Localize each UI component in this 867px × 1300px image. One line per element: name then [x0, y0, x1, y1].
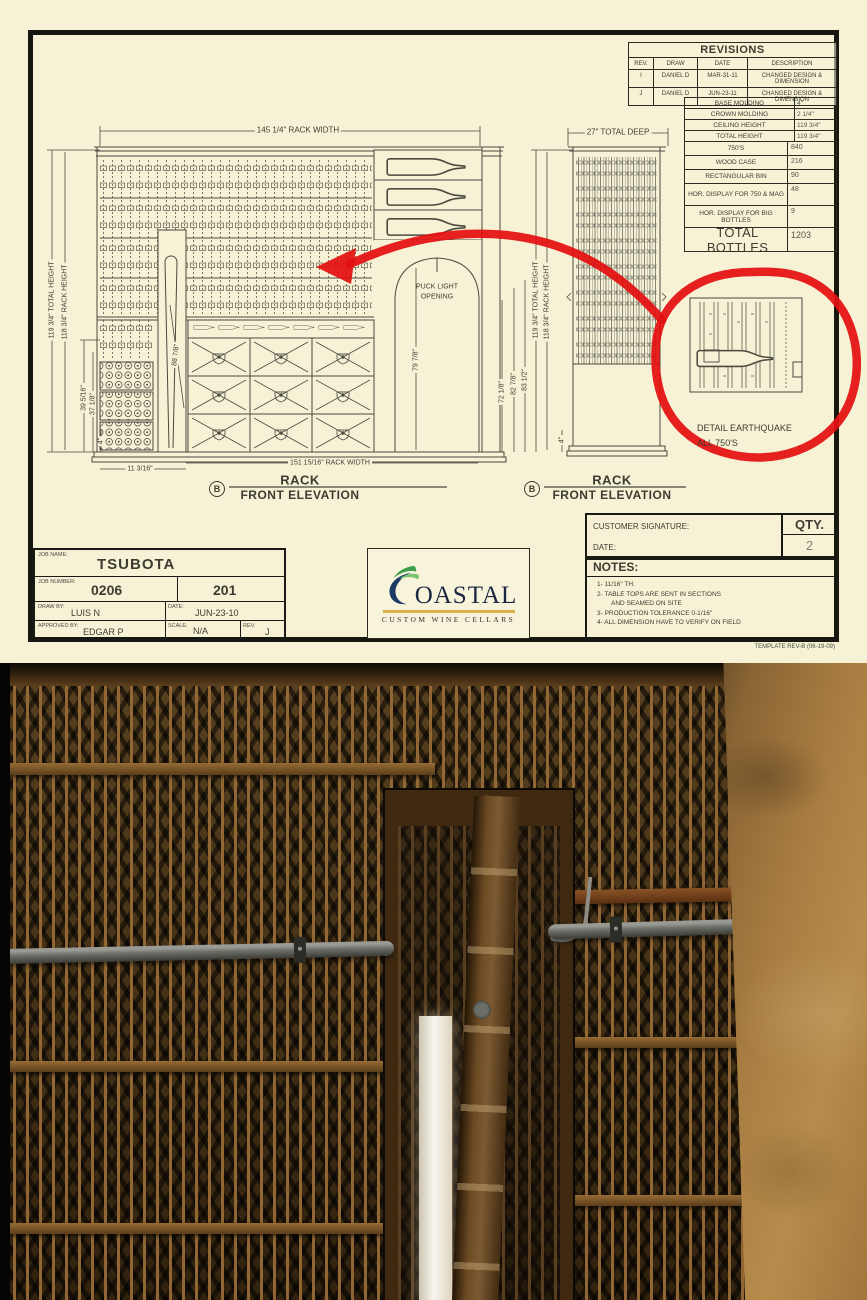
puck-light-label: OPENING [421, 294, 453, 301]
job-name-label: JOB NAME: [38, 552, 68, 558]
dim-label: 11 3/16" [125, 466, 154, 473]
revisions-header: DESCRIPTION [747, 58, 836, 69]
logo-gold-rule [383, 610, 515, 613]
rev-value: J [265, 627, 270, 637]
signature-block: CUSTOMER SIGNATURE: DATE: QTY. 2 [585, 513, 838, 560]
detail-caption: DETAIL EARTHQUAKE [697, 423, 792, 433]
revisions-header: REV. [629, 58, 653, 69]
detail-caption: ALL 750'S [697, 438, 738, 448]
photo-pipe-bracket [294, 937, 307, 963]
scale-label: SCALE: [168, 623, 188, 629]
scanned-page: REVISIONS REV. DRAW DATE DESCRIPTION I D… [0, 0, 867, 1300]
dim-label: 79 7/8" [413, 347, 420, 373]
notes-block: NOTES: 1- 11/16" TH. 2- TABLE TOPS ARE S… [585, 556, 838, 641]
customer-signature-label: CUSTOMER SIGNATURE: [593, 522, 689, 531]
total-bottles-label: TOTAL BOTTLES [685, 228, 787, 251]
spec-label: TOTAL HEIGHT [685, 131, 794, 141]
elevation-marker: B [524, 481, 540, 497]
revision-cell: J [629, 87, 653, 105]
dim-label: 27" TOTAL DEEP [585, 128, 652, 137]
count-value: 90 [787, 170, 836, 183]
right-rack-elevation [567, 147, 667, 456]
spec-value: 4" [794, 98, 836, 108]
date-value: JUN-23-10 [195, 608, 239, 618]
dim-label: 145 1/4" RACK WIDTH [255, 126, 341, 135]
dim-label: 82 7/8" [511, 371, 518, 397]
rev-label: REV. [243, 623, 255, 629]
revisions-header: DRAW [653, 58, 697, 69]
revision-cell: I [629, 69, 653, 87]
count-value: 48 [787, 184, 836, 205]
count-label: WOOD CASE [685, 156, 787, 169]
puck-light-label: PUCK LIGHT [416, 284, 458, 291]
approved-by-label: APPROVED BY: [38, 623, 79, 629]
draw-by-label: DRAW BY: [38, 604, 65, 610]
elevation-marker: B [209, 481, 225, 497]
count-value: 216 [787, 156, 836, 169]
dim-label: 151 15/16" RACK WIDTH [288, 460, 372, 467]
divider [240, 621, 241, 639]
photo-cellar-door [385, 790, 573, 1300]
divider [165, 602, 166, 620]
photo-wood-rail [10, 1061, 390, 1072]
draw-by-value: LUIS N [71, 608, 100, 618]
note-line: 3- PRODUCTION TOLERANCE 0-1/16" [597, 609, 832, 619]
photo-pipe-bracket [610, 916, 623, 942]
dim-label: 118 3/4" RACK HEIGHT [62, 262, 69, 341]
elevation-subtitle: FRONT ELEVATION [240, 488, 359, 502]
note-line: 1- 11/16" TH. [597, 580, 832, 590]
spec-label: BASE MOLDING [685, 98, 794, 108]
title-block: JOB NAME: TSUBOTA JOB NUMBER: 0206 201 D… [33, 548, 286, 641]
divider [165, 621, 166, 639]
spec-value: 119 3/4" [794, 120, 836, 130]
dim-label: 37 1/8" [90, 391, 97, 417]
spec-value: 2 1/4" [794, 109, 836, 119]
signature-date-label: DATE: [593, 543, 616, 552]
elevation-title: RACK [592, 473, 632, 488]
photo-wood-rail [10, 1223, 390, 1234]
scale-value: N/A [193, 626, 208, 636]
left-rack-elevation [92, 147, 506, 462]
qty-value: 2 [783, 535, 836, 553]
date-label: DATE: [168, 604, 184, 610]
note-line: 4- ALL DIMENSION HAVE TO VERIFY ON FIELD [597, 618, 832, 628]
count-label: RECTANGULAR BIN [685, 170, 787, 183]
specs-table: BASE MOLDING4" CROWN MOLDING2 1/4" CEILI… [684, 97, 837, 142]
note-line: 2- TABLE TOPS ARE SENT IN SECTIONS [597, 590, 832, 600]
sheet-number-value: 201 [213, 582, 236, 598]
photo-wood-rail [10, 763, 435, 775]
dim-label: 119 3/4" TOTAL HEIGHT [533, 259, 540, 340]
dim-label: 4" [98, 436, 105, 446]
photo-light-strip [419, 1016, 452, 1300]
revision-cell: DANIEL D [653, 69, 697, 87]
dim-label: 118 3/4" RACK HEIGHT [544, 262, 551, 341]
cellar-photo [0, 663, 867, 1300]
elevation-title: RACK [280, 473, 320, 488]
revision-cell: CHANGED DESIGN & DIMENSION [747, 69, 836, 87]
bottle-counts-table: 750'S840 WOOD CASE216 RECTANGULAR BIN90 … [684, 141, 837, 252]
revision-cell: MAR-31-11 [697, 69, 747, 87]
drawing-sheet: REVISIONS REV. DRAW DATE DESCRIPTION I D… [0, 0, 867, 663]
dim-label: 119 3/4" TOTAL HEIGHT [49, 259, 56, 340]
dim-label: 83 1/2" [522, 367, 529, 393]
template-revision-note: TEMPLATE REV-B (06-19-09) [690, 644, 835, 650]
job-name-value: TSUBOTA [97, 556, 175, 573]
divider [177, 577, 178, 601]
spec-value: 119 3/4" [794, 131, 836, 141]
job-number-label: JOB NUMBER: [38, 579, 76, 585]
spec-label: CEILING HEIGHT [685, 120, 794, 130]
note-line: AND SEAMED ON SITE [611, 599, 832, 609]
dim-label: 39 5/16" [81, 383, 88, 413]
approved-by-value: EDGAR P [83, 627, 124, 637]
elevation-subtitle: FRONT ELEVATION [552, 488, 671, 502]
dim-label: 4" [559, 435, 566, 445]
revisions-header: DATE [697, 58, 747, 69]
dim-label: 72 1/8" [499, 379, 506, 405]
qty-cell: QTY. 2 [781, 515, 836, 558]
qty-label: QTY. [783, 515, 836, 535]
notes-title: NOTES: [587, 558, 836, 577]
logo-wordmark: OASTAL [415, 585, 518, 607]
count-value: 840 [787, 142, 836, 155]
total-bottles-value: 1203 [787, 228, 836, 251]
count-value: 9 [787, 206, 836, 227]
spec-label: CROWN MOLDING [685, 109, 794, 119]
revisions-title: REVISIONS [629, 43, 836, 58]
job-number-value: 0206 [91, 582, 122, 598]
earthquake-detail [690, 298, 802, 392]
photo-left-edge-shadow [0, 663, 10, 1300]
count-label: HOR. DISPLAY FOR 750 & MAG [685, 184, 787, 205]
logo-tagline: CUSTOM WINE CELLARS [382, 615, 515, 624]
company-logo: OASTAL CUSTOM WINE CELLARS [367, 548, 530, 639]
count-label: 750'S [685, 142, 787, 155]
